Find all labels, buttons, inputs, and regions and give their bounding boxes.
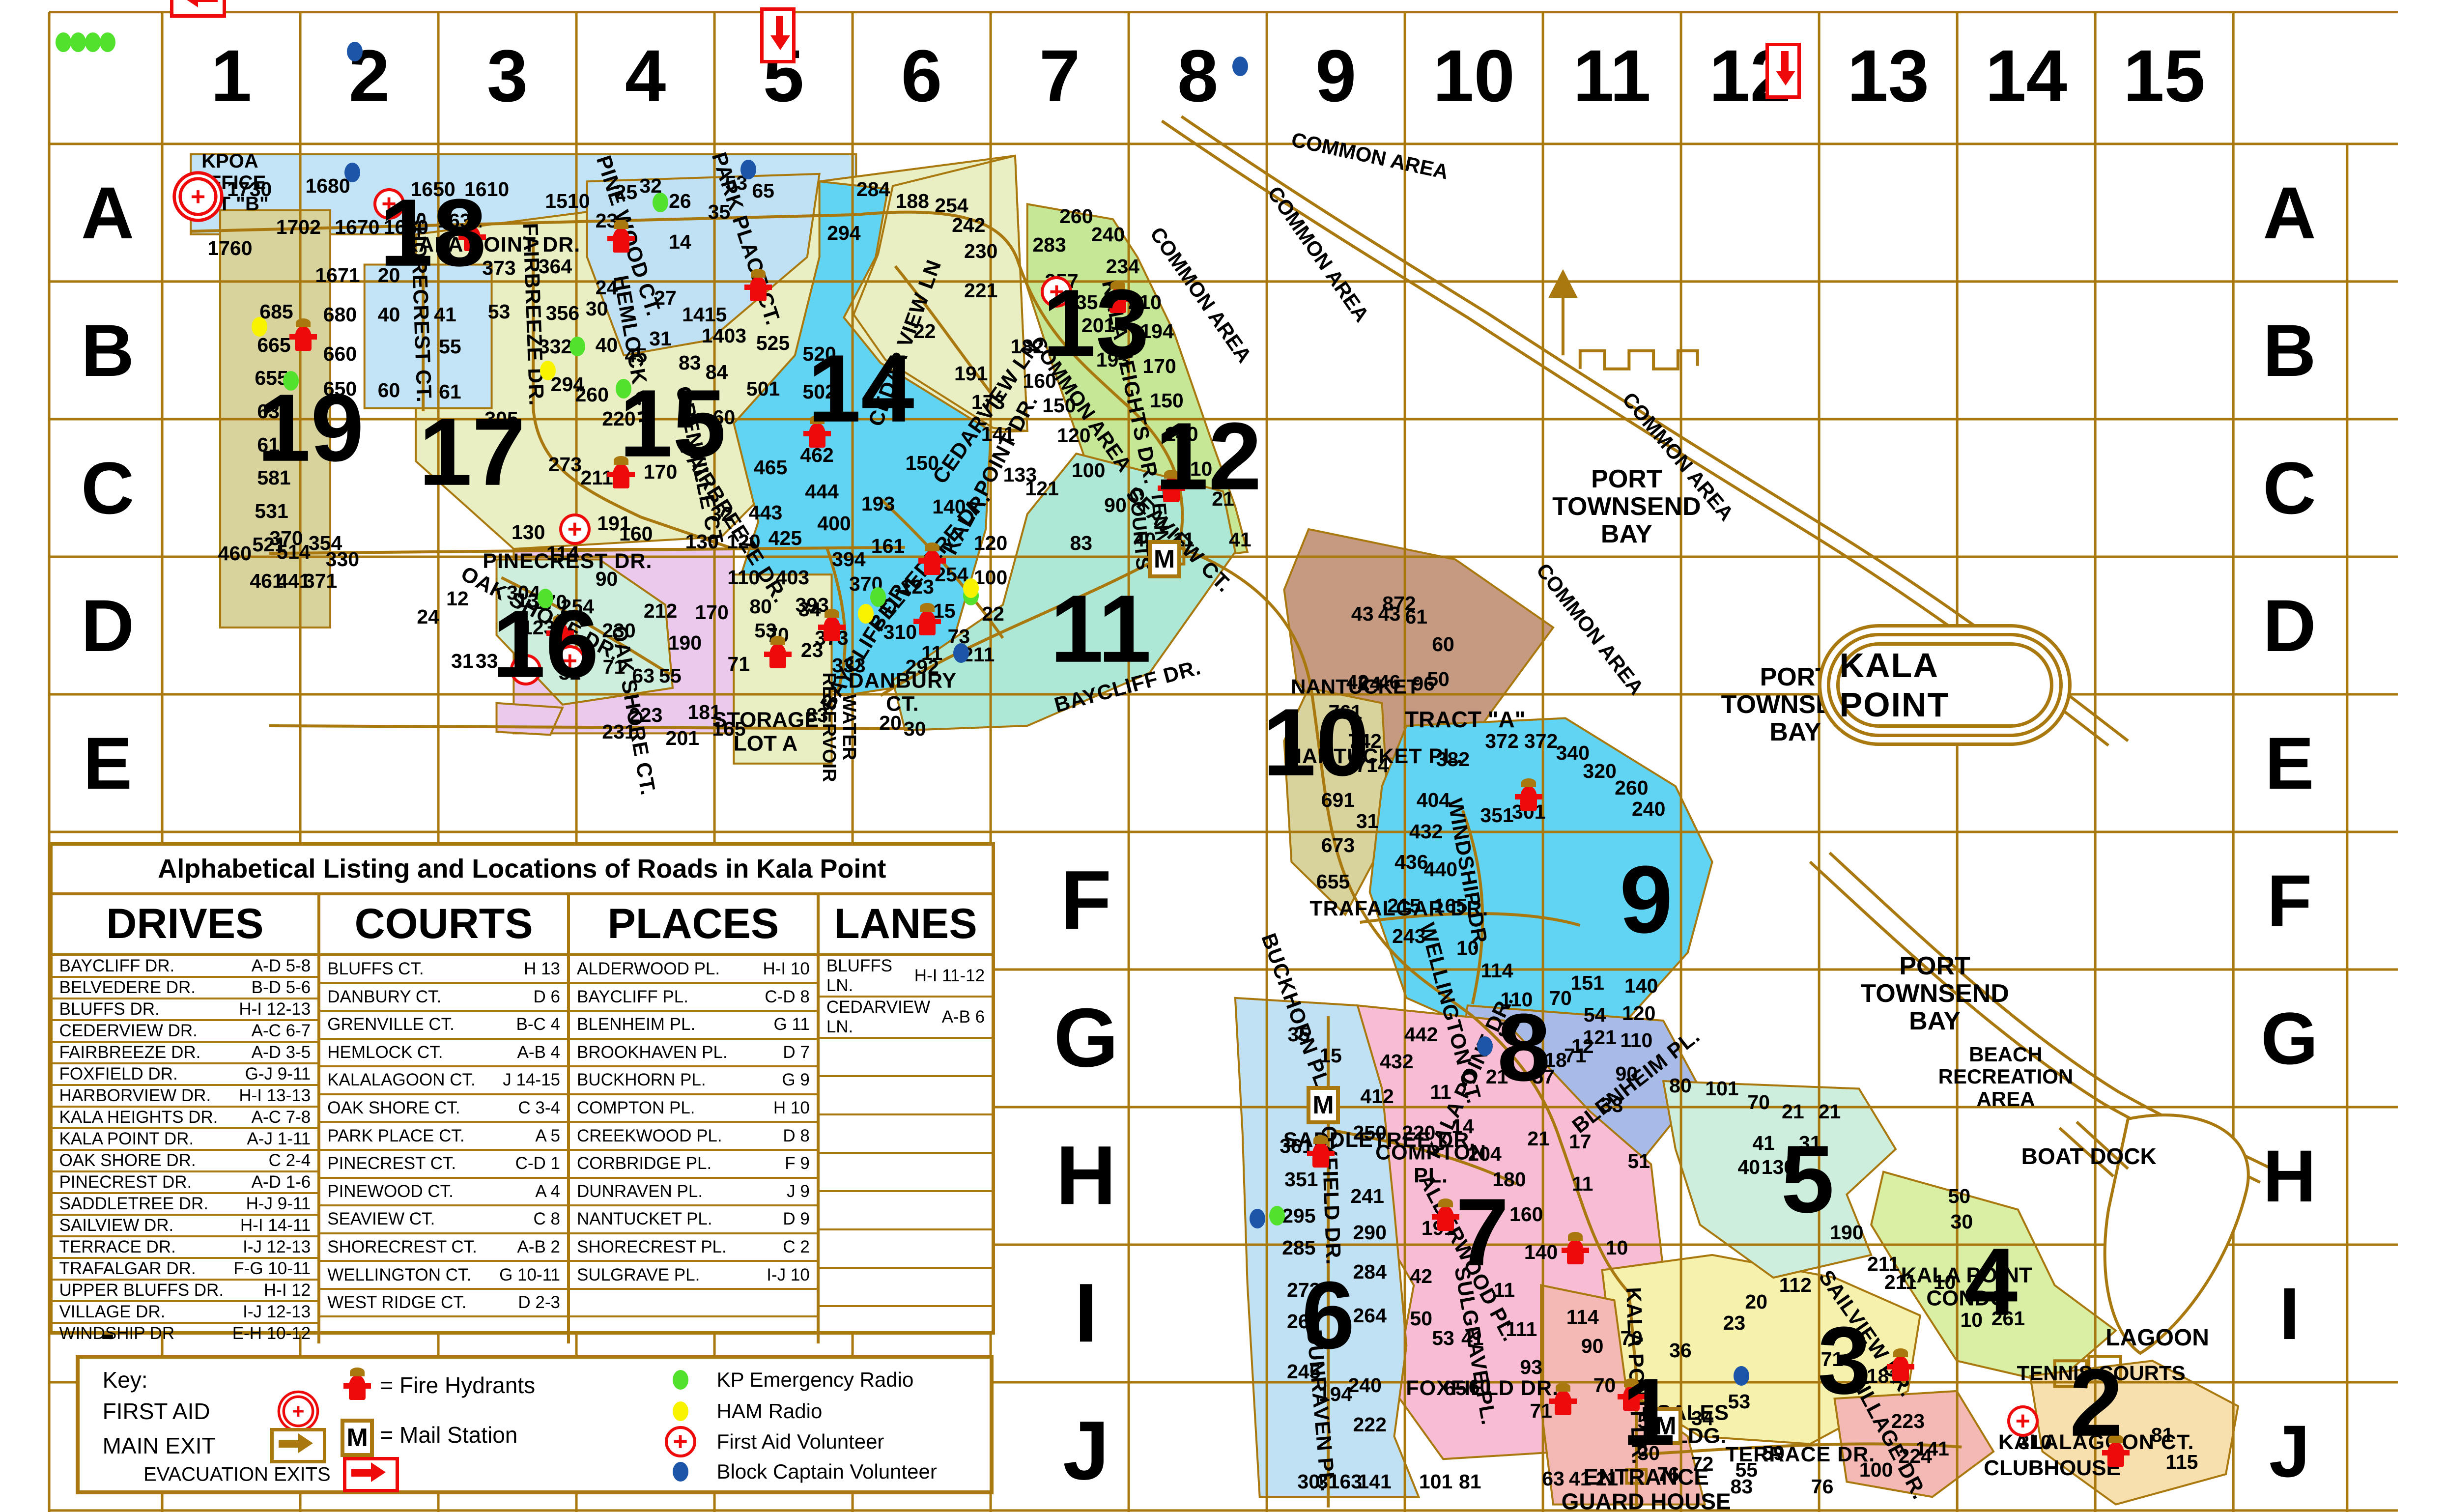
main-exit-icon: [270, 1428, 326, 1463]
lot-number: 333: [832, 655, 865, 676]
road-location-cell: A-B 4: [517, 1043, 560, 1062]
lot-number: 41: [1752, 1132, 1775, 1154]
grid-row-right-I: I: [2279, 1274, 2300, 1353]
lot-number: 440: [1424, 858, 1457, 880]
mail-station-icon: M: [341, 1419, 374, 1457]
road-name-cell: ALDERWOOD PL.: [577, 959, 763, 979]
road-name-cell: BLUFFS DR.: [59, 999, 239, 1019]
road-name-cell: SADDLETREE DR.: [59, 1194, 246, 1214]
road-location-cell: J 14-15: [503, 1070, 560, 1090]
lot-number: 460: [218, 542, 252, 564]
lot-number: 22: [982, 603, 1004, 625]
lot-number: 260: [1615, 777, 1648, 799]
grid-row-mid-F: F: [1060, 856, 1111, 946]
map-key: Key: FIRST AID + MAIN EXIT EVACUATION EX…: [76, 1355, 994, 1494]
grid-row-left-D: D: [81, 586, 134, 665]
lot-number: 10: [1606, 1236, 1628, 1258]
lot-number: 10: [1934, 1271, 1956, 1293]
grid-column-6: 6: [901, 36, 942, 115]
lot-number: 403: [776, 567, 809, 588]
lot-number: 12: [1571, 1035, 1594, 1057]
road-location-cell: A-C 7-8: [252, 1108, 311, 1127]
road-name-cell: COMPTON PL.: [577, 1098, 773, 1118]
lot-number: 364: [539, 255, 572, 277]
road-location-cell: I-J 12-13: [243, 1237, 311, 1257]
road-location-cell: H 13: [524, 959, 560, 979]
table-row: CORBRIDGE PL.F 9: [570, 1151, 817, 1179]
lot-number: 332: [539, 335, 572, 357]
lot-number: 12: [446, 588, 469, 609]
lot-number: 14: [1451, 1115, 1474, 1137]
lot-number: 1510: [545, 190, 590, 212]
road-name-cell: PINEWOOD CT.: [327, 1182, 535, 1201]
lot-number: 295: [1282, 1205, 1315, 1227]
section-number-6: 6: [1302, 1264, 1355, 1368]
table-row: FOXFIELD DR.G-J 9-11: [53, 1064, 318, 1086]
lot-number: 120: [974, 532, 1007, 554]
lot-number: 83: [1731, 1476, 1753, 1497]
lot-number: 83: [1070, 532, 1092, 554]
grid-column-11: 11: [1573, 36, 1651, 115]
section-number-12: 12: [1155, 405, 1262, 509]
road-location-cell: D 6: [534, 987, 560, 1007]
lot-number: 120: [1057, 425, 1090, 446]
lot-number: 531: [255, 500, 288, 522]
road-name-cell: TERRACE DR.: [59, 1237, 243, 1257]
road-name-cell: BLUFFS CT.: [327, 959, 524, 979]
key-kp-radio-label: KP Emergency Radio: [717, 1368, 914, 1392]
lot-number: 21: [1527, 1128, 1550, 1149]
lot-number: 161: [871, 535, 905, 557]
lot-number: 188: [896, 190, 929, 212]
lot-number: 60: [378, 379, 400, 401]
kp-radio-dot-icon: [653, 193, 668, 212]
fire-hydrant-icon: [924, 550, 940, 575]
table-row: BELVEDERE DR.B-D 5-6: [53, 978, 318, 999]
lot-number: 351: [1284, 1169, 1318, 1190]
road-name-cell: PINECREST CT.: [327, 1154, 515, 1173]
lot-number: 59: [1762, 1442, 1785, 1464]
lot-number: 41: [1569, 1468, 1592, 1489]
road-table-columns: DRIVESBAYCLIFF DR.A-D 5-8BELVEDERE DR.B-…: [53, 895, 992, 1343]
section-number-15: 15: [619, 371, 726, 475]
lot-number: 23: [1723, 1312, 1746, 1334]
road-location-cell: H 10: [773, 1098, 810, 1118]
road-location-cell: H-I 13-13: [239, 1086, 311, 1106]
lot-number: 61: [1405, 606, 1427, 628]
lot-number: 404: [1417, 789, 1450, 811]
lot-number: 221: [964, 280, 997, 301]
lot-number: 330: [326, 548, 359, 570]
area-label: CLUBHOUSE: [1984, 1456, 2121, 1480]
lot-number: 372: [1524, 730, 1558, 752]
section-number-10: 10: [1263, 691, 1369, 795]
key-block-captain-label: Block Captain Volunteer: [717, 1460, 937, 1483]
road-location-cell: E-H 10-12: [232, 1324, 311, 1343]
table-row: CEDARVIEW LN.A-B 6: [820, 998, 992, 1039]
lot-number: 81: [2151, 1424, 2174, 1446]
lot-number: 190: [1830, 1222, 1863, 1243]
lot-number: 114: [546, 542, 579, 564]
table-row-empty: [570, 1317, 817, 1343]
lot-number: 25: [615, 181, 638, 203]
lot-number: 40: [596, 334, 618, 355]
lot-number: 110: [727, 567, 760, 588]
lot-number: 241: [1350, 1185, 1384, 1207]
area-label: PORT TOWNSEND BAY: [1860, 952, 2009, 1034]
lot-number: 230: [602, 620, 635, 641]
table-row-empty: [820, 1154, 992, 1192]
lot-number: 211: [1867, 1253, 1900, 1275]
road-location-cell: A-C 6-7: [252, 1021, 311, 1041]
road-name-cell: SHORECREST CT.: [327, 1237, 517, 1257]
kala-point-oval-text: KALA POINT: [1839, 646, 2049, 724]
key-evacuation-label: EVACUATION EXITS: [143, 1463, 331, 1485]
road-index-table: Alphabetical Listing and Locations of Ro…: [49, 842, 995, 1335]
section-number-3: 3: [1818, 1309, 1871, 1413]
lot-number: 101: [1419, 1471, 1452, 1492]
road-name-cell: HARBORVIEW DR.: [59, 1086, 239, 1106]
road-location-cell: H-I 11-12: [914, 966, 985, 986]
road-location-cell: A-J 1-11: [247, 1129, 311, 1149]
lot-number: 220: [1402, 1122, 1435, 1143]
table-row: BLUFFS LN.H-I 11-12: [820, 956, 992, 998]
section-number-9: 9: [1620, 848, 1673, 952]
lot-number: 45: [625, 344, 647, 366]
lot-number: 370: [269, 527, 303, 549]
road-name-cell: TRAFALGAR DR.: [59, 1259, 234, 1279]
lot-number: 33: [1601, 1094, 1623, 1116]
grid-row-mid-G: G: [1053, 993, 1118, 1084]
lot-number: 76: [1657, 1463, 1679, 1485]
area-label: BEACH RECREATION AREA: [1938, 1043, 2074, 1110]
road-location-cell: F 9: [785, 1154, 810, 1173]
lot-number: 442: [1404, 1024, 1438, 1045]
mail-station-icon: M: [1148, 540, 1181, 578]
table-row: PARK PLACE CT.A 5: [320, 1123, 567, 1151]
lot-number: 400: [817, 513, 851, 534]
lot-number: 60: [1432, 633, 1454, 655]
block-captain-dot-icon: [673, 1462, 688, 1482]
road-location-cell: J 9: [787, 1182, 810, 1201]
lot-number: 1403: [702, 325, 746, 346]
first-aid-volunteer-icon: +: [665, 1426, 696, 1457]
fire-hydrant-icon: [824, 617, 840, 641]
lot-number: 1670: [335, 216, 379, 237]
lot-number: 444: [805, 481, 838, 502]
lot-number: 242: [952, 214, 985, 236]
lot-number: 320: [1583, 760, 1616, 782]
table-row: PINECREST CT.C-D 1: [320, 1151, 567, 1179]
fire-hydrant-icon: [349, 1375, 366, 1400]
lot-number: 284: [1353, 1261, 1386, 1283]
block-captain-dot-icon: [1734, 1366, 1749, 1386]
lot-number: 21: [1596, 1468, 1619, 1489]
lot-number: 212: [644, 600, 677, 622]
lot-number: 130: [512, 521, 545, 543]
road-name-cell: BUCKHORN PL.: [577, 1070, 782, 1090]
table-row-empty: [570, 1290, 817, 1318]
lot-number: 27: [654, 287, 677, 309]
kp-radio-dot-icon: [569, 337, 585, 356]
lot-number: 101: [1705, 1078, 1738, 1099]
lot-number: 436: [1394, 851, 1428, 873]
road-location-cell: D 9: [783, 1209, 809, 1229]
grid-row-left-B: B: [81, 311, 134, 390]
lot-number: 120: [1622, 1002, 1655, 1024]
kp-radio-dot-icon: [673, 1370, 688, 1390]
block-captain-dot-icon: [953, 643, 969, 663]
section-number-13: 13: [1043, 272, 1149, 375]
lot-number: 30: [1297, 1471, 1320, 1492]
table-row: TRAFALGAR DR.F-G 10-11: [53, 1259, 318, 1281]
ham-radio-dot-icon: [963, 578, 979, 598]
grid-row-right-H: H: [2263, 1136, 2316, 1216]
road-name-cell: BELVEDERE DR.: [59, 978, 252, 998]
table-row: SEAVIEW CT.C 8: [320, 1206, 567, 1234]
lot-number: 680: [323, 304, 357, 325]
table-row: GRENVILLE CT.B-C 4: [320, 1012, 567, 1040]
lot-number: 290: [1353, 1222, 1386, 1243]
table-row-empty: [820, 1192, 992, 1230]
lot-number: 53: [1728, 1391, 1751, 1412]
lot-number: 100: [1859, 1459, 1893, 1481]
lot-number: 163: [1329, 1471, 1362, 1492]
road-location-cell: D 2-3: [518, 1293, 560, 1312]
table-column-courts: COURTSBLUFFS CT.H 13DANBURY CT.D 6GRENVI…: [320, 895, 570, 1343]
lot-number: 501: [746, 378, 780, 399]
lot-number: 70: [1593, 1374, 1616, 1396]
section-number-5: 5: [1781, 1128, 1834, 1231]
lot-number: 151: [1571, 972, 1604, 994]
lot-number: 31: [451, 650, 474, 672]
lot-number: 260: [1059, 205, 1093, 227]
key-ham-radio-label: HAM Radio: [717, 1399, 823, 1423]
lot-number: 173: [971, 391, 1005, 413]
kp-radio-dot-icon: [70, 32, 86, 52]
lot-number: 182: [1011, 335, 1044, 357]
road-location-cell: I-J 12-13: [243, 1302, 311, 1322]
lot-number: 160: [619, 523, 653, 544]
area-label: PORT TOWNSEND BAY: [1552, 465, 1701, 548]
area-label: LAGOON: [2105, 1325, 2209, 1351]
road-location-cell: B-D 5-6: [252, 978, 311, 998]
lot-number: 223: [629, 704, 662, 726]
road-name-cell: FAIRBREEZE DR.: [59, 1043, 252, 1062]
table-row: COMPTON PL.H 10: [570, 1095, 817, 1123]
lot-number: 15: [1319, 1045, 1342, 1066]
road-location-cell: C 8: [534, 1209, 560, 1229]
lot-number: 111: [1506, 1318, 1537, 1340]
block-captain-dot-icon: [344, 163, 360, 182]
road-name-cell: KALA POINT DR.: [59, 1129, 247, 1149]
lot-number: 432: [1380, 1051, 1413, 1072]
kp-radio-dot-icon: [1269, 1206, 1285, 1226]
lot-number: 160: [1509, 1203, 1543, 1225]
lot-number: 1680: [305, 175, 350, 197]
lot-number: 141: [1358, 1471, 1391, 1492]
grid-row-right-B: B: [2263, 311, 2316, 390]
grid-row-left-C: C: [81, 448, 134, 528]
road-location-cell: A-D 1-6: [252, 1172, 311, 1192]
lot-number: 412: [1360, 1085, 1394, 1107]
lot-number: 204: [1468, 1143, 1501, 1165]
table-row-empty: [820, 1307, 992, 1343]
table-row: OAK SHORE DR.C 2-4: [53, 1151, 318, 1172]
road-name-cell: CREEKWOOD PL.: [577, 1126, 783, 1146]
road-name-cell: OAK SHORE CT.: [327, 1098, 518, 1118]
road-name-cell: KALALAGOON CT.: [327, 1070, 503, 1090]
lot-number: 70: [1747, 1091, 1770, 1113]
lot-number: 1415: [682, 304, 727, 325]
lot-number: 371: [304, 570, 337, 591]
lot-number: 254: [935, 195, 968, 216]
lot-number: 525: [756, 332, 790, 354]
lot-number: 240: [1348, 1374, 1382, 1396]
table-row: CEDERVIEW DR.A-C 6-7: [53, 1021, 318, 1043]
lot-number: 40: [1737, 1156, 1760, 1178]
lot-number: 51: [1627, 1150, 1650, 1172]
block-captain-dot-icon: [1232, 57, 1248, 76]
area-label: TRACT "A": [1405, 708, 1525, 732]
road-location-cell: A 5: [535, 1126, 560, 1146]
lot-number: 114: [1566, 1306, 1599, 1328]
table-row: KALALAGOON CT.J 14-15: [320, 1067, 567, 1095]
road-location-cell: C 2: [783, 1237, 809, 1257]
lot-number: 71: [728, 653, 750, 675]
lot-number: 65: [752, 180, 774, 201]
lot-number: 673: [1321, 834, 1355, 856]
lot-number: 660: [323, 343, 357, 365]
road-name-cell: NANTUCKET PL.: [577, 1209, 783, 1229]
lot-number: 285: [1282, 1236, 1315, 1258]
road-name-cell: DANBURY CT.: [327, 987, 533, 1007]
road-location-cell: C 2-4: [269, 1151, 311, 1170]
table-row-empty: [320, 1317, 567, 1343]
lot-number: 21: [1782, 1100, 1804, 1122]
key-mail-station-label: = Mail Station: [380, 1422, 517, 1448]
lot-number: 283: [1032, 234, 1066, 256]
lot-number: 120: [727, 530, 760, 552]
road-location-cell: F-G 10-11: [233, 1259, 311, 1279]
lot-number: 40: [378, 304, 400, 325]
lot-number: 140: [932, 496, 966, 517]
road-name-cell: HEMLOCK CT.: [327, 1043, 517, 1062]
grid-column-9: 9: [1315, 36, 1356, 115]
lot-number: 50: [1948, 1185, 1971, 1207]
lot-number: 70: [1549, 987, 1572, 1009]
table-row: BLUFFS DR.H-I 12-13: [53, 999, 318, 1021]
road-name-cell: GRENVILLE CT.: [327, 1015, 516, 1034]
fire-hydrant-icon: [1437, 1206, 1454, 1231]
lot-number: 100: [1072, 459, 1105, 481]
road-name-cell: WINDSHIP DR: [59, 1324, 232, 1343]
lot-number: 115: [2165, 1451, 2198, 1473]
table-row: BAYCLIFF PL.C-D 8: [570, 984, 817, 1012]
road-name-cell: CEDERVIEW DR.: [59, 1021, 252, 1041]
road-name-cell: CORBRIDGE PL.: [577, 1154, 785, 1173]
road-name-cell: BAYCLIFF PL.: [577, 987, 765, 1007]
table-row: UPPER BLUFFS DR.H-I 12: [53, 1281, 318, 1302]
road-location-cell: H-I 12: [264, 1281, 311, 1300]
lot-number: 31: [649, 328, 672, 349]
lot-number: 63: [632, 665, 654, 686]
table-row: BAYCLIFF DR.A-D 5-8: [53, 956, 318, 978]
lot-number: 240: [1632, 798, 1665, 820]
section-number-7: 7: [1455, 1180, 1508, 1284]
lot-number: 11: [1430, 1081, 1451, 1102]
table-row-empty: [820, 1230, 992, 1269]
lot-number: 264: [1353, 1305, 1386, 1326]
grid-column-4: 4: [625, 36, 666, 115]
grid-column-10: 10: [1433, 36, 1515, 115]
section-number-19: 19: [257, 376, 364, 480]
lot-number: 1730: [227, 178, 272, 200]
table-row: HARBORVIEW DR.H-I 13-13: [53, 1086, 318, 1108]
road-name-cell: SAILVIEW DR.: [59, 1216, 240, 1235]
road-location-cell: C-D 1: [515, 1154, 560, 1173]
table-column-drives: DRIVESBAYCLIFF DR.A-D 5-8BELVEDERE DR.B-…: [53, 895, 321, 1343]
lot-number: 35: [1288, 1024, 1310, 1045]
section-number-2: 2: [2070, 1351, 2123, 1455]
lot-number: 165: [1434, 895, 1467, 916]
lot-number: 1702: [276, 216, 321, 237]
lot-number: 30: [586, 298, 608, 319]
road-name-cell: UPPER BLUFFS DR.: [59, 1281, 264, 1300]
section-number-11: 11: [1050, 577, 1151, 681]
lot-number: 665: [257, 334, 290, 355]
table-row: WELLINGTON CT.G 10-11: [320, 1262, 567, 1290]
block-captain-dot-icon: [1250, 1209, 1265, 1228]
table-row: SULGRAVE PL.I-J 10: [570, 1262, 817, 1290]
road-location-cell: G 10-11: [499, 1265, 560, 1285]
lot-number: 443: [749, 502, 782, 523]
lot-number: 41: [1229, 529, 1251, 550]
block-captain-dot-icon: [740, 160, 756, 179]
table-row: VILLAGE DR.I-J 12-13: [53, 1302, 318, 1324]
section-number-1: 1: [1622, 1361, 1675, 1464]
area-label: BOAT DOCK: [2021, 1144, 2157, 1169]
area-label: WATER RESERVOIR: [819, 672, 859, 782]
key-main-exit-label: MAIN EXIT: [103, 1432, 216, 1459]
lot-number: 34: [1691, 1407, 1714, 1429]
table-row: PINEWOOD CT.A 4: [320, 1179, 567, 1207]
lot-number: 170: [695, 601, 728, 623]
ham-radio-dot-icon: [673, 1401, 688, 1421]
lot-number: 425: [768, 527, 802, 549]
fire-hydrant-icon: [1520, 786, 1537, 811]
section-number-18: 18: [380, 181, 486, 285]
fire-hydrant-icon: [1555, 1391, 1571, 1415]
kp-radio-dot-icon: [100, 32, 115, 52]
first-aid-volunteer-icon: +: [559, 514, 591, 545]
table-row: TERRACE DR.I-J 12-13: [53, 1237, 318, 1259]
table-row: DUNRAVEN PL.J 9: [570, 1179, 817, 1207]
table-row: ALDERWOOD PL.H-I 10: [570, 956, 817, 984]
block-captain-dot-icon: [347, 42, 363, 61]
kp-radio-dot-icon: [85, 32, 101, 52]
first-aid-icon: +: [282, 1396, 314, 1427]
road-name-cell: KALA HEIGHTS DR.: [59, 1108, 252, 1127]
lot-number: 260: [575, 384, 608, 405]
lot-number: 63: [1542, 1468, 1564, 1489]
lot-number: 130: [685, 530, 718, 552]
fire-hydrant-icon: [1567, 1240, 1584, 1264]
road-location-cell: D 8: [783, 1126, 809, 1146]
lot-number: 230: [964, 240, 997, 262]
lot-number: 165: [712, 718, 745, 740]
lot-number: 243: [1392, 925, 1425, 947]
